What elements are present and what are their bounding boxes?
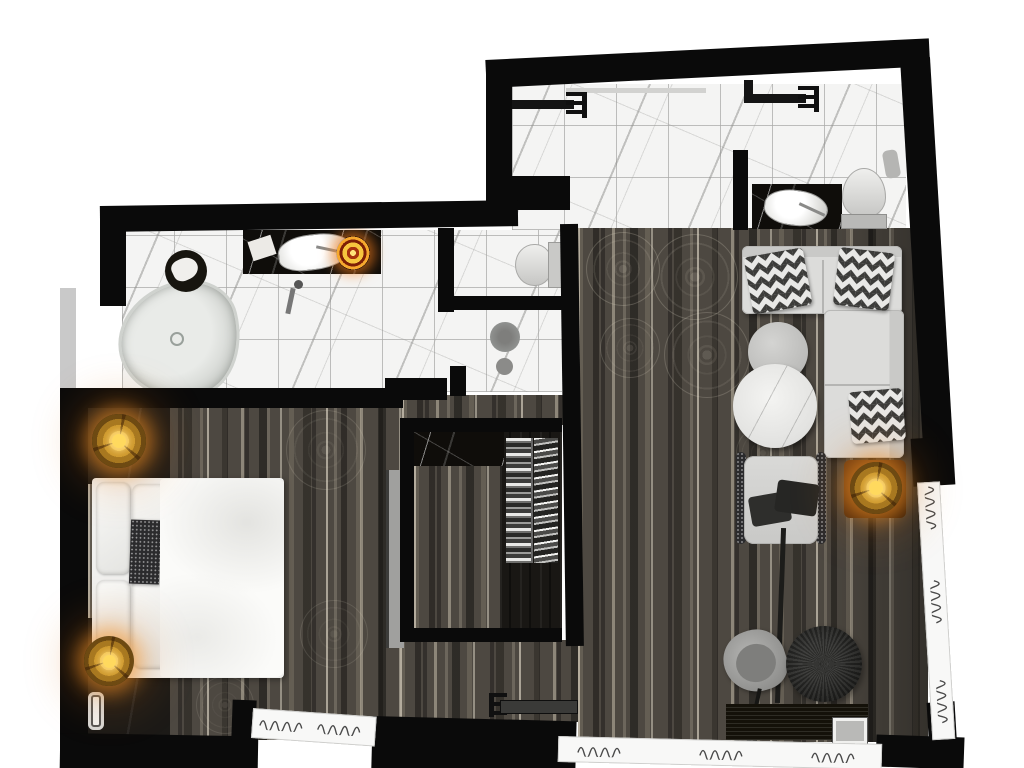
bedside-lamp-icon <box>92 414 146 468</box>
table-lamp-icon <box>850 462 902 514</box>
floor-plan-canvas <box>0 0 1024 768</box>
lamps <box>0 0 1024 768</box>
bedside-lamp-icon <box>84 636 134 686</box>
